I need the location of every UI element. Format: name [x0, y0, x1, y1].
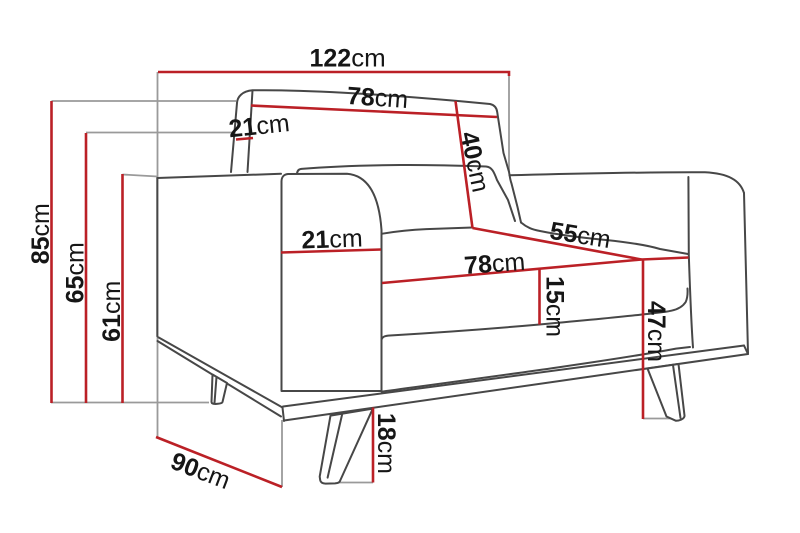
- svg-text:15cm: 15cm: [540, 276, 568, 337]
- svg-text:78cm: 78cm: [346, 82, 409, 114]
- svg-text:21cm: 21cm: [301, 224, 363, 254]
- svg-text:65cm: 65cm: [62, 242, 90, 303]
- svg-text:47cm: 47cm: [642, 301, 670, 362]
- svg-text:85cm: 85cm: [27, 203, 55, 264]
- svg-text:122cm: 122cm: [310, 45, 386, 73]
- svg-text:78cm: 78cm: [463, 248, 526, 280]
- svg-text:18cm: 18cm: [372, 413, 400, 474]
- svg-text:61cm: 61cm: [98, 281, 126, 342]
